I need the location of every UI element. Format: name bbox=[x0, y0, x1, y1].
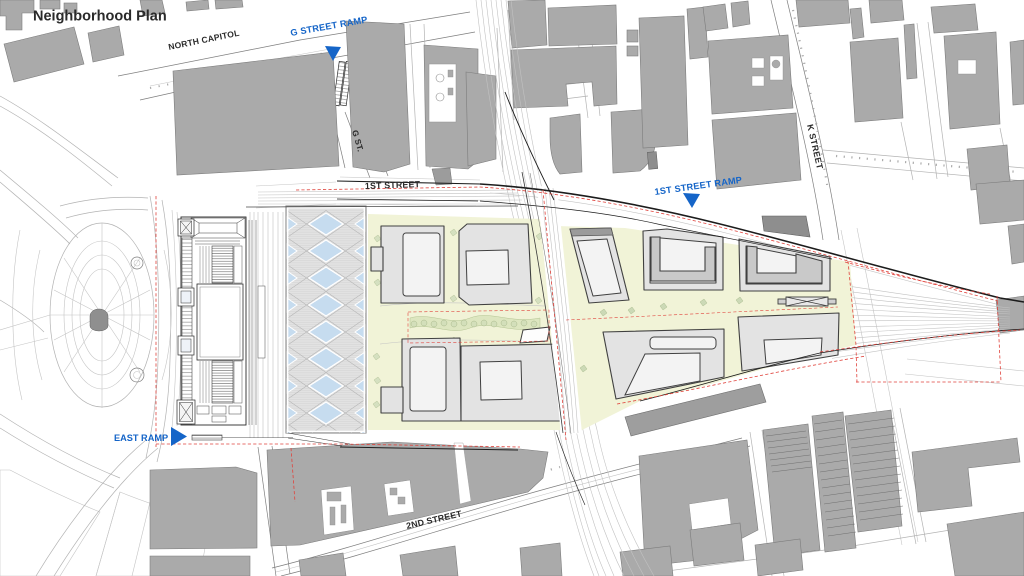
svg-text:Neighborhood Plan: Neighborhood Plan bbox=[33, 9, 167, 25]
svg-text:EAST RAMP: EAST RAMP bbox=[114, 433, 168, 443]
svg-text:1ST STREET: 1ST STREET bbox=[365, 179, 421, 191]
